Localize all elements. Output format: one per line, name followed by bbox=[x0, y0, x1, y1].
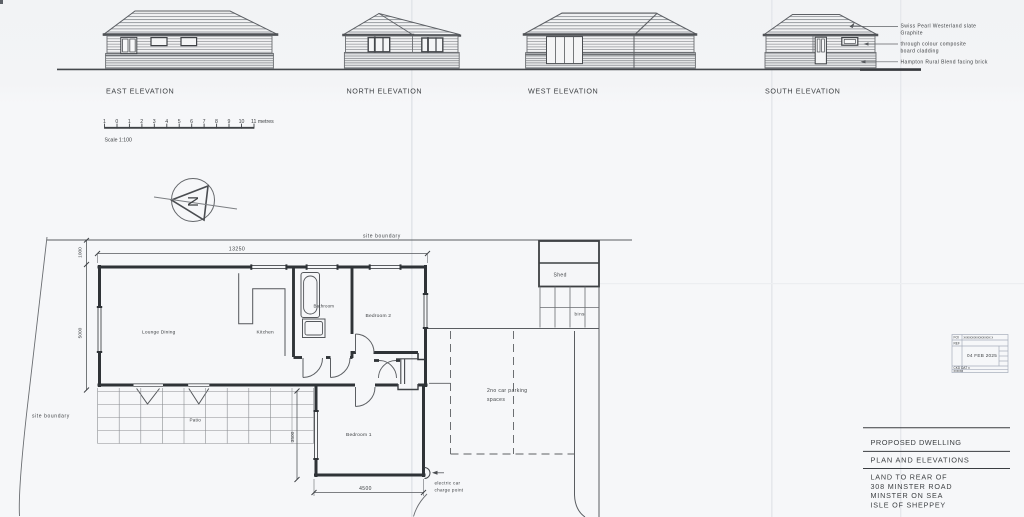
svg-text:Kitchen: Kitchen bbox=[257, 330, 275, 336]
svg-text:11 metres: 11 metres bbox=[251, 119, 274, 125]
svg-text:N: N bbox=[184, 196, 201, 207]
svg-text:8: 8 bbox=[215, 119, 218, 125]
svg-text:charge point: charge point bbox=[435, 488, 464, 493]
svg-text:PROPOSED DWELLING: PROPOSED DWELLING bbox=[871, 438, 962, 447]
svg-text:FOI: FOI bbox=[954, 336, 959, 340]
svg-text:site boundary: site boundary bbox=[363, 234, 401, 240]
svg-text:spaces: spaces bbox=[487, 397, 505, 403]
svg-text:10: 10 bbox=[239, 119, 245, 125]
svg-text:Lounge Dining: Lounge Dining bbox=[142, 330, 176, 336]
svg-text:electric car: electric car bbox=[435, 481, 461, 486]
svg-text:9: 9 bbox=[228, 119, 231, 125]
svg-text:SOUTH ELEVATION: SOUTH ELEVATION bbox=[765, 87, 840, 96]
svg-text:Hampton Rural Blend facing bri: Hampton Rural Blend facing brick bbox=[901, 59, 988, 65]
svg-text:Bedroom 1: Bedroom 1 bbox=[346, 432, 372, 438]
svg-text:xxxxxxxxxxxxxxxxx x: xxxxxxxxxxxxxxxxx x bbox=[964, 336, 994, 340]
svg-text:Swiss Pearl Westerland slate: Swiss Pearl Westerland slate bbox=[901, 24, 977, 30]
svg-text:PLAN AND ELEVATIONS: PLAN AND ELEVATIONS bbox=[871, 456, 970, 465]
svg-text:MINSTER ON SEA: MINSTER ON SEA bbox=[871, 491, 944, 500]
svg-text:Bedroom 2: Bedroom 2 bbox=[366, 313, 392, 319]
svg-text:308 MINSTER ROAD: 308 MINSTER ROAD bbox=[871, 482, 953, 491]
svg-text:through colour composite: through colour composite bbox=[901, 42, 967, 48]
svg-text:board cladding: board cladding bbox=[901, 49, 939, 55]
svg-text:7: 7 bbox=[203, 119, 206, 125]
svg-text:Graphite: Graphite bbox=[901, 31, 923, 37]
svg-text:1: 1 bbox=[103, 119, 106, 125]
svg-text:3500: 3500 bbox=[290, 431, 296, 442]
svg-text:13250: 13250 bbox=[229, 247, 245, 253]
svg-text:ISLE OF SHEPPEY: ISLE OF SHEPPEY bbox=[871, 501, 947, 510]
svg-text:04 FEB 2025: 04 FEB 2025 bbox=[967, 353, 997, 358]
svg-text:Scale 1:100: Scale 1:100 bbox=[105, 138, 133, 144]
svg-text:1000: 1000 bbox=[78, 247, 84, 258]
svg-text:NORTH ELEVATION: NORTH ELEVATION bbox=[347, 87, 423, 96]
svg-text:LAND TO REAR OF: LAND TO REAR OF bbox=[871, 473, 948, 482]
svg-text:Bathroom: Bathroom bbox=[314, 304, 335, 309]
svg-text:EAST ELEVATION: EAST ELEVATION bbox=[106, 87, 174, 96]
svg-text:5000: 5000 bbox=[78, 327, 84, 338]
svg-text:WEST ELEVATION: WEST ELEVATION bbox=[528, 87, 598, 96]
svg-text:bins: bins bbox=[575, 312, 586, 317]
svg-text:2: 2 bbox=[140, 119, 143, 125]
svg-text:REF: REF bbox=[954, 342, 960, 346]
svg-text:5: 5 bbox=[178, 119, 181, 125]
svg-text:4: 4 bbox=[165, 119, 168, 125]
svg-text:Patio: Patio bbox=[190, 418, 202, 423]
svg-text:Shed: Shed bbox=[554, 273, 567, 279]
svg-text:4500: 4500 bbox=[359, 486, 372, 492]
svg-text:xxxxxx: xxxxxx bbox=[954, 369, 964, 373]
svg-text:3: 3 bbox=[153, 119, 156, 125]
svg-text:0: 0 bbox=[115, 119, 118, 125]
svg-text:1: 1 bbox=[128, 119, 131, 125]
svg-text:2no car parking: 2no car parking bbox=[487, 388, 527, 394]
svg-text:site boundary: site boundary bbox=[32, 414, 70, 420]
svg-text:6: 6 bbox=[190, 119, 193, 125]
